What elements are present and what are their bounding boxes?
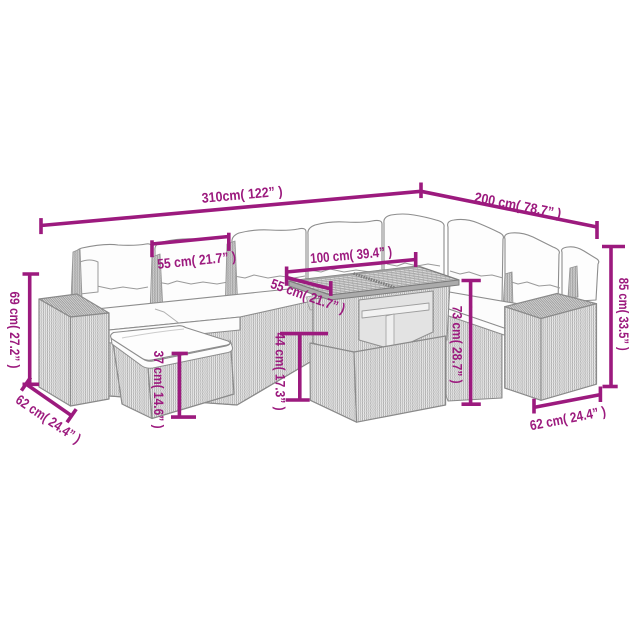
svg-text:85 cm( 33.5” ): 85 cm( 33.5” ) [616,278,632,351]
svg-text:69 cm( 27.2” ): 69 cm( 27.2” ) [7,292,23,369]
svg-text:44 cm( 17.3” ): 44 cm( 17.3” ) [272,333,288,411]
svg-text:37 cm( 14.6” ): 37 cm( 14.6” ) [151,351,167,429]
svg-text:73 cm( 28.7” ): 73 cm( 28.7” ) [450,306,466,384]
